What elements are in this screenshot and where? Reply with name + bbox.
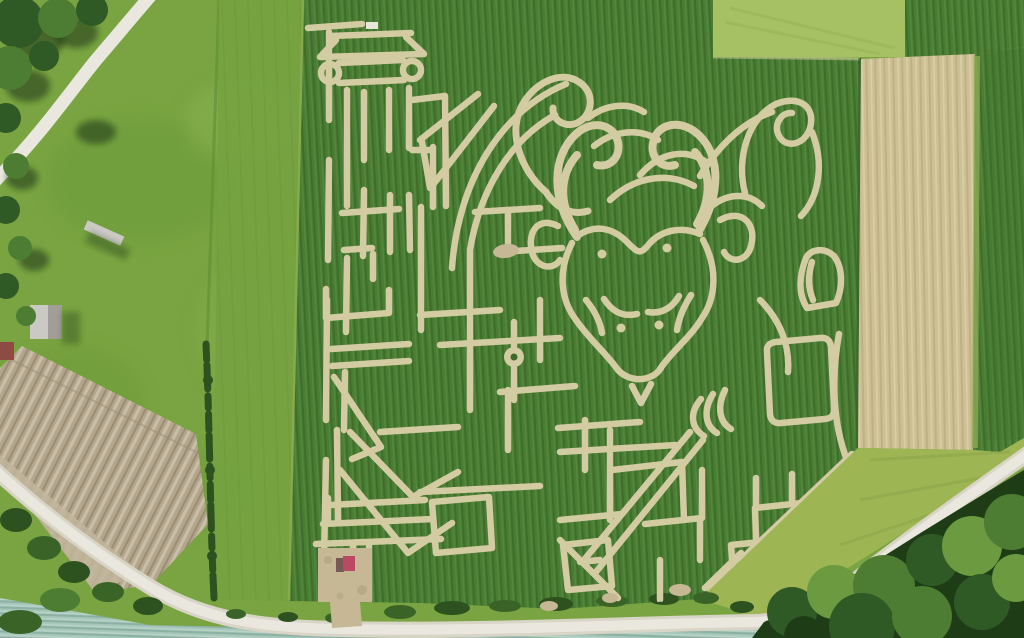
harvested-strip — [858, 54, 975, 450]
tree-canopy — [16, 306, 36, 326]
minotaur-nostril-right — [655, 321, 664, 330]
tree-canopy — [3, 153, 29, 179]
corn-block-topright — [905, 0, 1024, 57]
aerial-photo-corn-maze — [0, 0, 1024, 638]
tree-canopy — [29, 41, 59, 71]
red-roof-building — [0, 342, 14, 360]
green-sliver — [975, 56, 977, 448]
right-strip-shade — [985, 50, 1024, 440]
clearing-center-tree — [511, 354, 518, 361]
tree-canopy — [8, 236, 32, 260]
white-marker — [366, 22, 378, 29]
minotaur-eye-right — [663, 244, 672, 253]
corn-patch-edge — [713, 57, 860, 59]
maze-border-top — [308, 24, 362, 28]
entrance-shadow — [336, 558, 344, 572]
scene-canvas — [0, 0, 1024, 638]
minotaur-eye-left — [598, 250, 607, 259]
minotaur-nostril-left — [617, 324, 626, 333]
red-trailer — [343, 556, 355, 571]
